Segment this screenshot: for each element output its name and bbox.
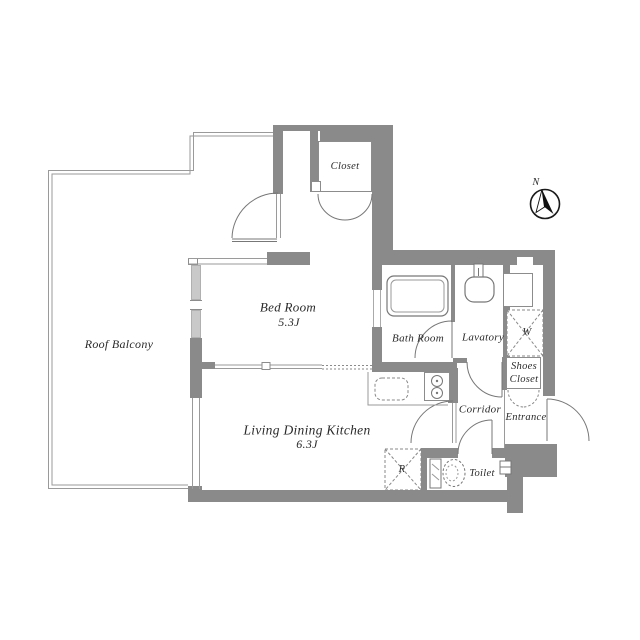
ldk-label: Living Dining Kitchen [243, 423, 370, 437]
washing-machine-label: W [522, 328, 531, 339]
balcony-railing [49, 133, 274, 489]
shoes-closet-door-arc [523, 390, 539, 407]
toilet-tank [430, 459, 441, 488]
ldk-door-arc [411, 401, 453, 443]
corridor-label: Corridor [459, 405, 501, 416]
bedroom-north-window [188, 259, 267, 265]
entrance-door-arc [547, 399, 589, 441]
balcony-door-leaf [232, 239, 277, 242]
balcony-door-frame [277, 194, 281, 238]
washbasin [465, 277, 494, 302]
ldk-west-window [193, 398, 200, 489]
entrance-label: Entrance [506, 413, 547, 424]
ldk-door-frame [453, 403, 457, 443]
shoes-closet-label-2: Closet [510, 375, 539, 386]
shoes-closet-label-1: Shoes [511, 362, 537, 373]
ldk-area: 6.3J [296, 438, 318, 450]
roof-balcony-label: Roof Balcony [85, 338, 154, 350]
lavatory-label: Lavatory [462, 333, 504, 344]
bath-room-label: Bath Room [392, 334, 444, 345]
balcony-door-arc [232, 193, 278, 238]
closet-door-arc [318, 194, 345, 220]
shoes-closet-door-arc [508, 390, 523, 407]
bathtub [387, 276, 448, 316]
balcony-railing [52, 136, 273, 485]
stove-burner-dot [436, 392, 438, 394]
lavatory-door-arc [467, 362, 502, 397]
closet-label: Closet [331, 162, 360, 173]
toilet-door-arc [458, 420, 492, 454]
compass-north-label: N [533, 178, 540, 188]
sliding-partition-pocket [322, 366, 372, 370]
floor-plan: Roof Balcony Bed Room 5.3J Living Dining… [0, 0, 640, 640]
refrigerator-label: R [399, 465, 406, 476]
toilet-label: Toilet [469, 469, 494, 480]
bed-room-area: 5.3J [278, 316, 300, 328]
partition-track [262, 363, 270, 370]
bed-room-label: Bed Room [260, 301, 316, 314]
stove-burner-dot [436, 380, 438, 382]
kitchen-sink [375, 378, 408, 400]
closet-door-arc [345, 194, 372, 220]
plan-linework [0, 0, 640, 640]
